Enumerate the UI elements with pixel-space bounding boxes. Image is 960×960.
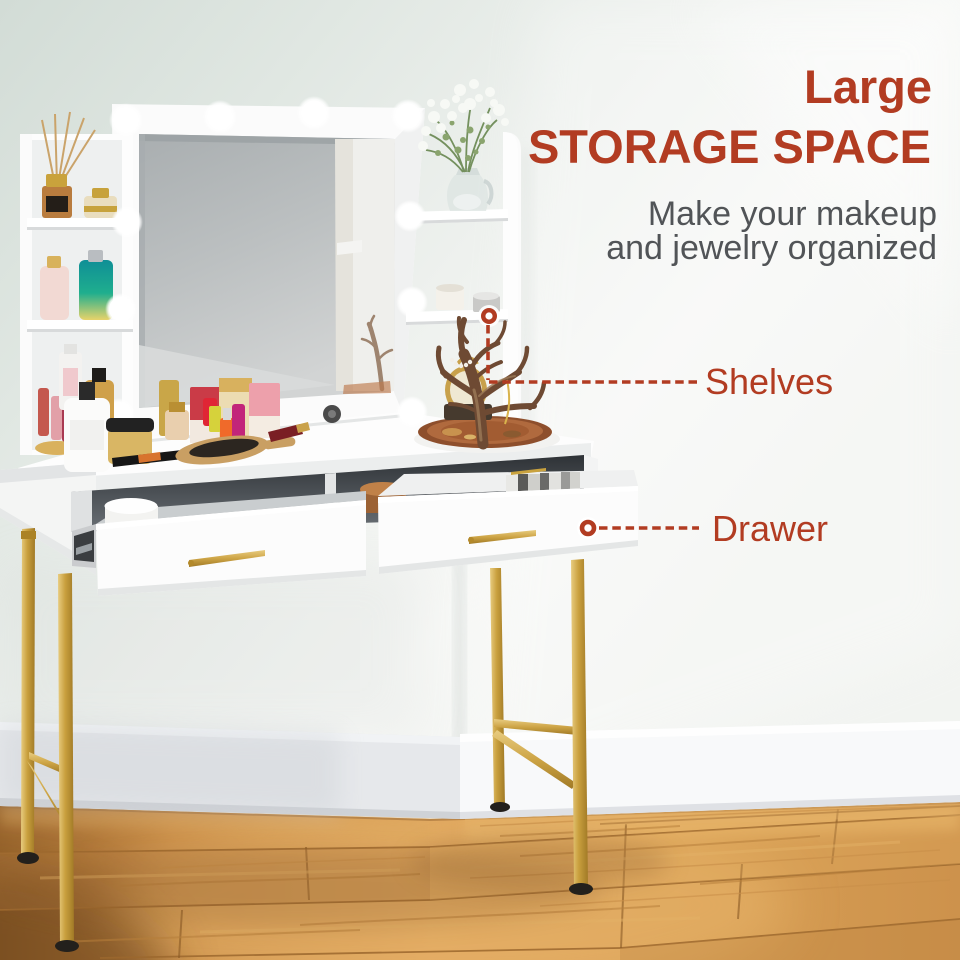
svg-text:STORAGE SPACE: STORAGE SPACE <box>528 120 931 173</box>
svg-text:Drawer: Drawer <box>712 508 828 549</box>
svg-text:and jewelry organized: and jewelry organized <box>606 229 937 267</box>
svg-text:Make your makeup: Make your makeup <box>648 195 937 233</box>
svg-text:Large: Large <box>804 60 932 113</box>
svg-text:Shelves: Shelves <box>705 361 833 402</box>
